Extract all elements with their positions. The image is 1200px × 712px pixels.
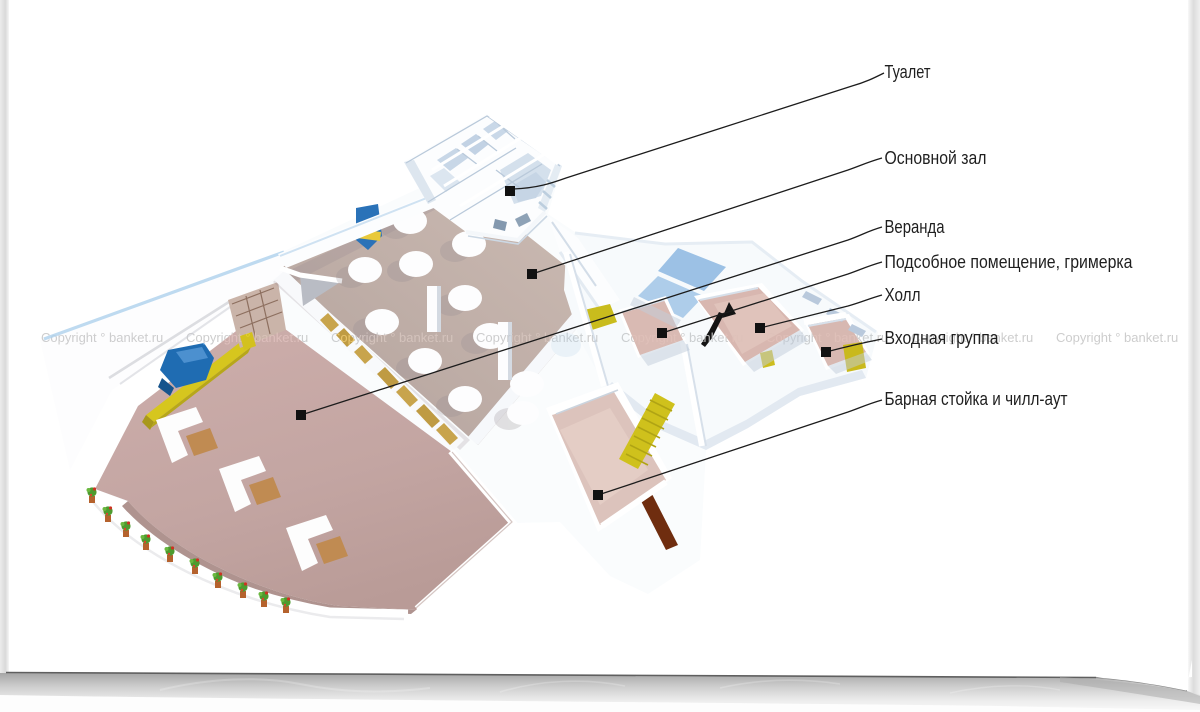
svg-text:Подсобное помещение, гримерка: Подсобное помещение, гримерка [885, 252, 1134, 272]
svg-text:Copyright ° banket.ru: Copyright ° banket.ru [331, 330, 453, 345]
svg-text:Copyright ° banket.ru: Copyright ° banket.ru [766, 330, 888, 345]
svg-text:Веранда: Веранда [885, 217, 946, 237]
svg-text:Copyright ° banket.ru: Copyright ° banket.ru [621, 330, 743, 345]
svg-text:Copyright ° banket.ru: Copyright ° banket.ru [186, 330, 308, 345]
svg-text:Входная группа: Входная группа [885, 328, 1000, 348]
svg-text:Copyright ° banket.ru: Copyright ° banket.ru [476, 330, 598, 345]
svg-text:Туалет: Туалет [885, 62, 931, 82]
svg-text:Copyright ° banket.ru: Copyright ° banket.ru [1056, 330, 1178, 345]
svg-text:Барная стойка и чилл-аут: Барная стойка и чилл-аут [885, 389, 1068, 409]
svg-text:Холл: Холл [885, 285, 921, 305]
svg-text:Основной зал: Основной зал [885, 148, 987, 168]
svg-text:Copyright ° banket.ru: Copyright ° banket.ru [41, 330, 163, 345]
